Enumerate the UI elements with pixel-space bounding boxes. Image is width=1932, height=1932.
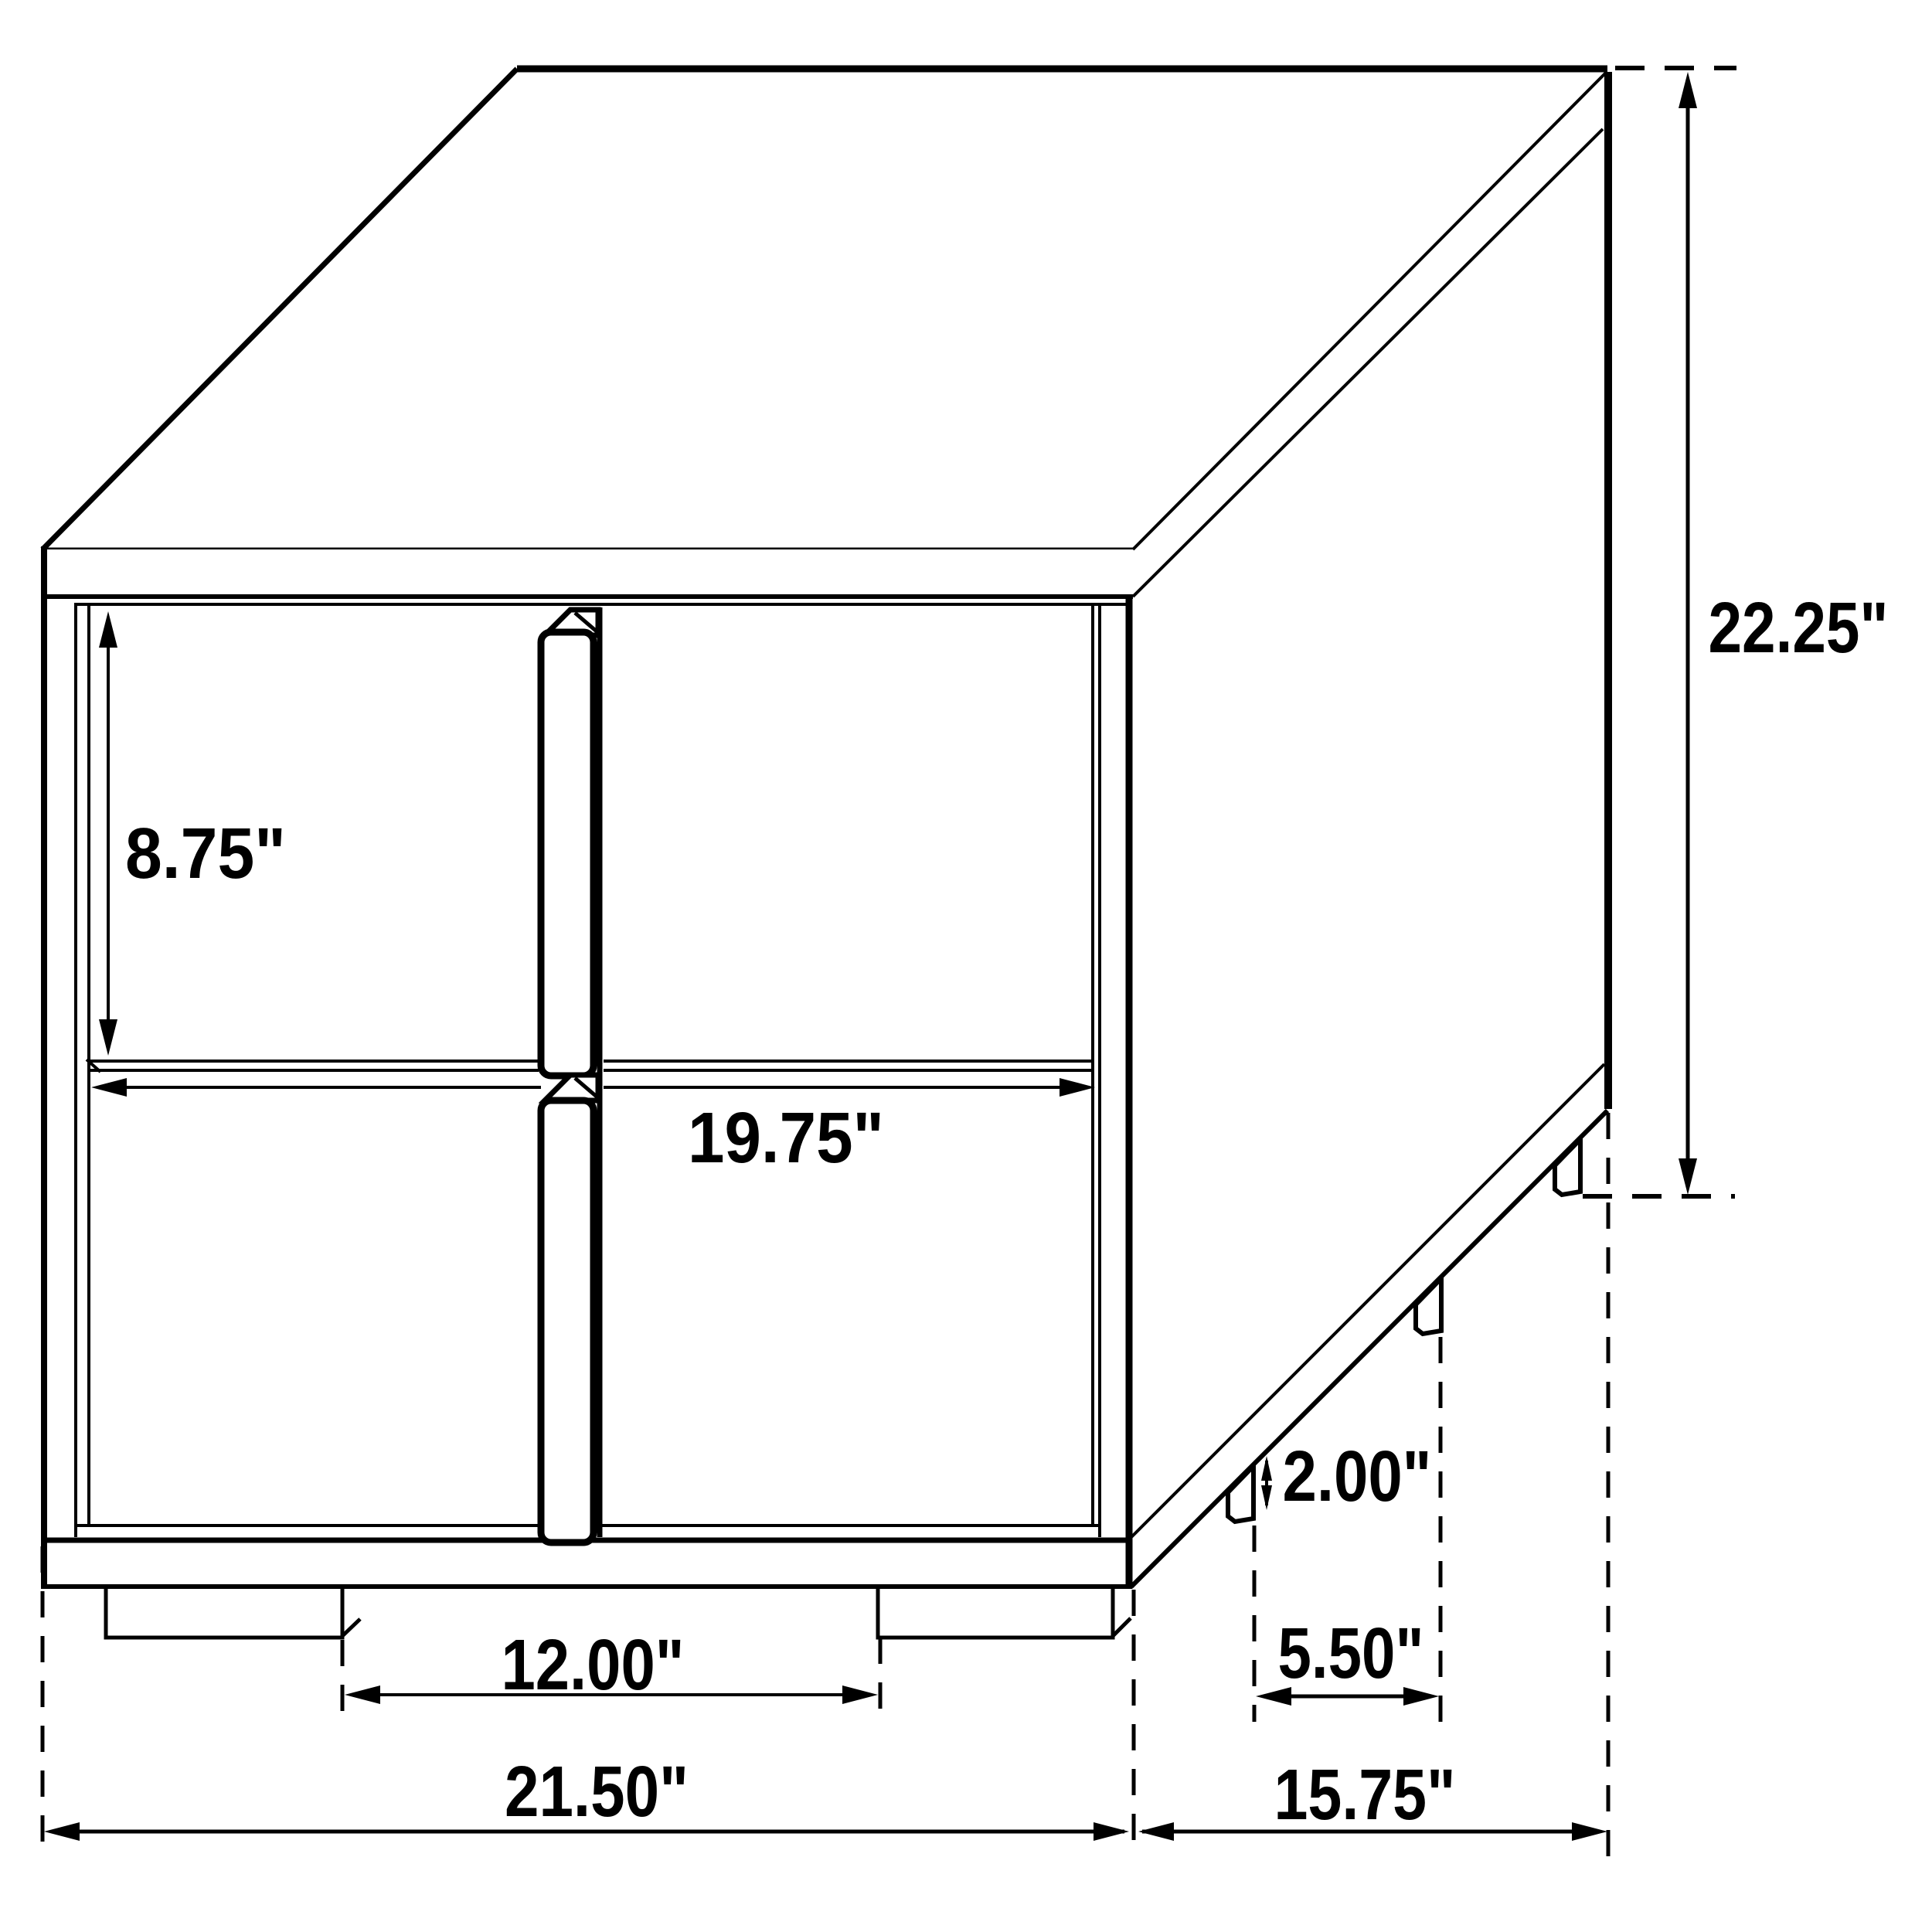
svg-text:19.75": 19.75" — [688, 1097, 884, 1178]
svg-text:22.25": 22.25" — [1709, 587, 1889, 668]
svg-text:2.00": 2.00" — [1283, 1436, 1432, 1516]
svg-text:8.75": 8.75" — [125, 813, 286, 893]
svg-text:21.50": 21.50" — [505, 1751, 689, 1832]
svg-text:15.75": 15.75" — [1274, 1754, 1456, 1835]
svg-text:12.00": 12.00" — [502, 1624, 685, 1705]
svg-text:5.50": 5.50" — [1278, 1613, 1424, 1693]
